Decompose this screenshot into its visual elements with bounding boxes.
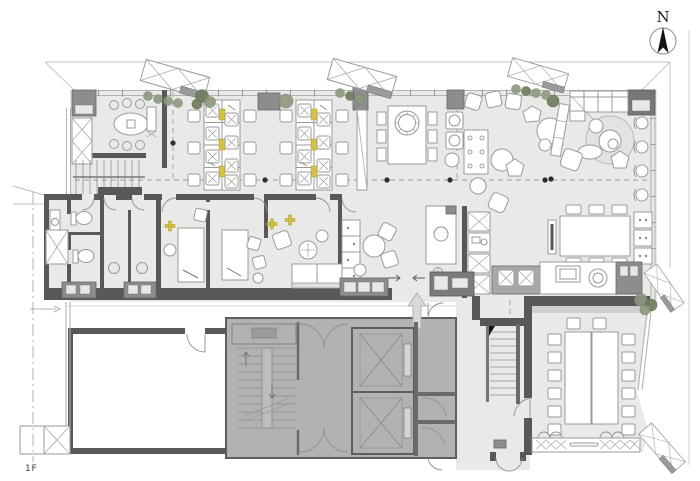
dining-table	[560, 216, 630, 256]
floor-plan: N 1F	[0, 0, 700, 481]
elevator-2	[352, 392, 414, 454]
elevator-1	[352, 328, 414, 392]
west-window	[46, 230, 68, 264]
pouf	[445, 153, 459, 167]
desk-cluster-2	[280, 100, 348, 190]
conference-table	[565, 332, 591, 424]
wall-cabinet	[258, 93, 280, 110]
exterior-step	[530, 306, 645, 313]
flipchart	[147, 107, 156, 131]
desk-cluster-1	[188, 100, 256, 190]
toilet-1	[76, 212, 92, 225]
floor-label: 1F	[25, 464, 38, 474]
toilet-2	[78, 250, 94, 263]
lounge-chair-organic	[599, 130, 621, 152]
compass-label: N	[656, 8, 669, 26]
wardrobe	[72, 118, 92, 164]
sofa	[570, 91, 628, 112]
oval-table	[114, 113, 148, 135]
retail-room-floor	[73, 330, 223, 452]
workshop-area	[377, 106, 437, 164]
plant-pot	[279, 94, 293, 108]
floor-plan-page: N 1F	[0, 0, 700, 481]
copier-cabinet	[447, 90, 464, 109]
